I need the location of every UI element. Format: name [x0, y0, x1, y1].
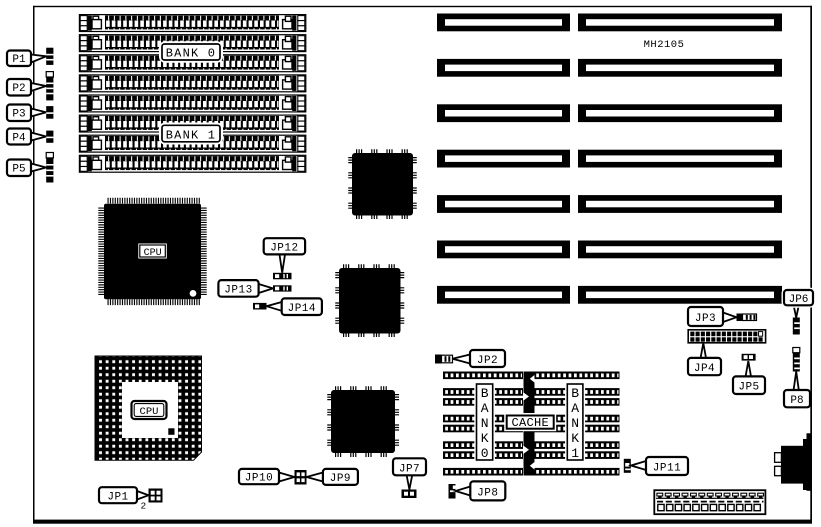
- svg-text:JP8: JP8: [477, 487, 498, 499]
- svg-text:BANK 0: BANK 0: [166, 47, 216, 61]
- svg-text:JP9: JP9: [330, 473, 351, 485]
- svg-text:JP14: JP14: [288, 303, 316, 315]
- svg-text:2: 2: [141, 501, 147, 512]
- svg-text:JP12: JP12: [270, 243, 298, 255]
- svg-text:BANK 1: BANK 1: [166, 128, 216, 142]
- svg-text:JP3: JP3: [695, 313, 716, 325]
- svg-text:A: A: [571, 401, 579, 416]
- svg-text:P5: P5: [12, 164, 25, 176]
- svg-text:0: 0: [481, 446, 489, 461]
- svg-text:JP13: JP13: [224, 285, 252, 297]
- svg-text:P4: P4: [12, 133, 26, 145]
- svg-text:B: B: [571, 386, 579, 401]
- svg-text:CPU: CPU: [140, 406, 159, 418]
- svg-text:A: A: [481, 401, 489, 416]
- svg-text:CACHE: CACHE: [511, 416, 549, 430]
- svg-text:B: B: [481, 386, 489, 401]
- svg-text:K: K: [481, 431, 489, 446]
- svg-text:JP4: JP4: [694, 363, 715, 375]
- svg-text:JP10: JP10: [245, 473, 273, 485]
- svg-text:JP2: JP2: [477, 355, 498, 367]
- svg-text:P8: P8: [790, 395, 803, 407]
- svg-text:N: N: [481, 416, 489, 431]
- svg-text:MH2105: MH2105: [644, 39, 685, 51]
- svg-text:JP5: JP5: [738, 382, 759, 394]
- svg-text:JP1: JP1: [107, 491, 128, 503]
- svg-text:JP11: JP11: [653, 463, 681, 475]
- svg-text:P2: P2: [12, 83, 25, 95]
- svg-text:P3: P3: [12, 109, 25, 121]
- svg-text:CPU: CPU: [144, 248, 162, 259]
- svg-text:JP6: JP6: [789, 294, 809, 306]
- svg-text:1: 1: [571, 446, 579, 461]
- svg-text:P1: P1: [12, 54, 26, 66]
- svg-text:N: N: [571, 416, 579, 431]
- svg-text:JP7: JP7: [399, 463, 420, 475]
- svg-text:K: K: [571, 431, 579, 446]
